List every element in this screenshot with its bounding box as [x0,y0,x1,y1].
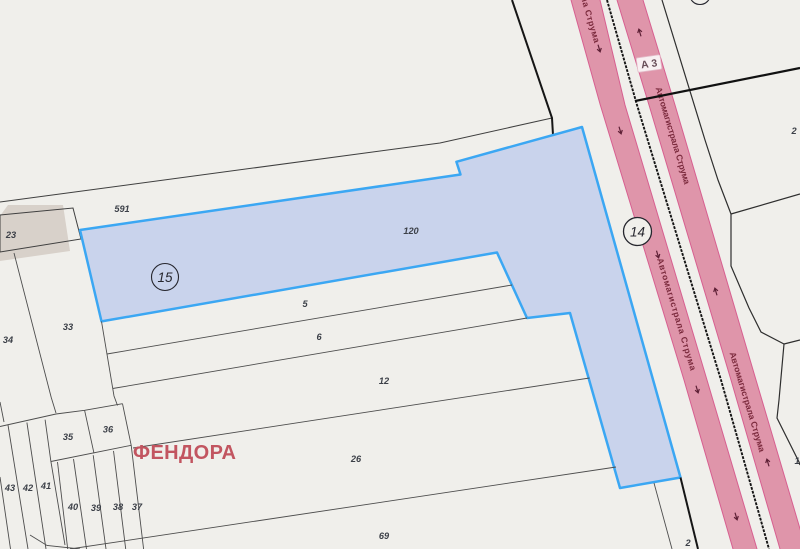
svg-text:14: 14 [630,225,645,240]
svg-text:23: 23 [5,230,16,240]
svg-text:2: 2 [790,126,797,136]
svg-text:40: 40 [67,502,79,512]
svg-text:26: 26 [350,454,362,464]
svg-text:2: 2 [684,538,691,548]
svg-text:41: 41 [40,481,51,491]
svg-text:42: 42 [22,483,34,493]
svg-text:38: 38 [113,502,124,512]
svg-text:5: 5 [302,299,308,309]
svg-text:69: 69 [379,531,390,541]
svg-text:36: 36 [103,425,114,435]
svg-text:120: 120 [403,226,419,236]
svg-text:33: 33 [63,322,73,332]
svg-text:43: 43 [4,483,15,493]
svg-text:А 3: А 3 [640,57,658,71]
svg-text:12: 12 [379,376,390,386]
svg-text:34: 34 [3,335,13,345]
svg-text:37: 37 [132,502,143,512]
svg-text:35: 35 [63,432,74,442]
svg-text:39: 39 [91,503,102,513]
svg-text:15: 15 [157,270,173,285]
svg-text:591: 591 [114,204,129,214]
svg-text:6: 6 [316,332,322,342]
svg-text:1: 1 [794,456,799,466]
svg-text:ФЕНДОРА: ФЕНДОРА [133,442,236,464]
